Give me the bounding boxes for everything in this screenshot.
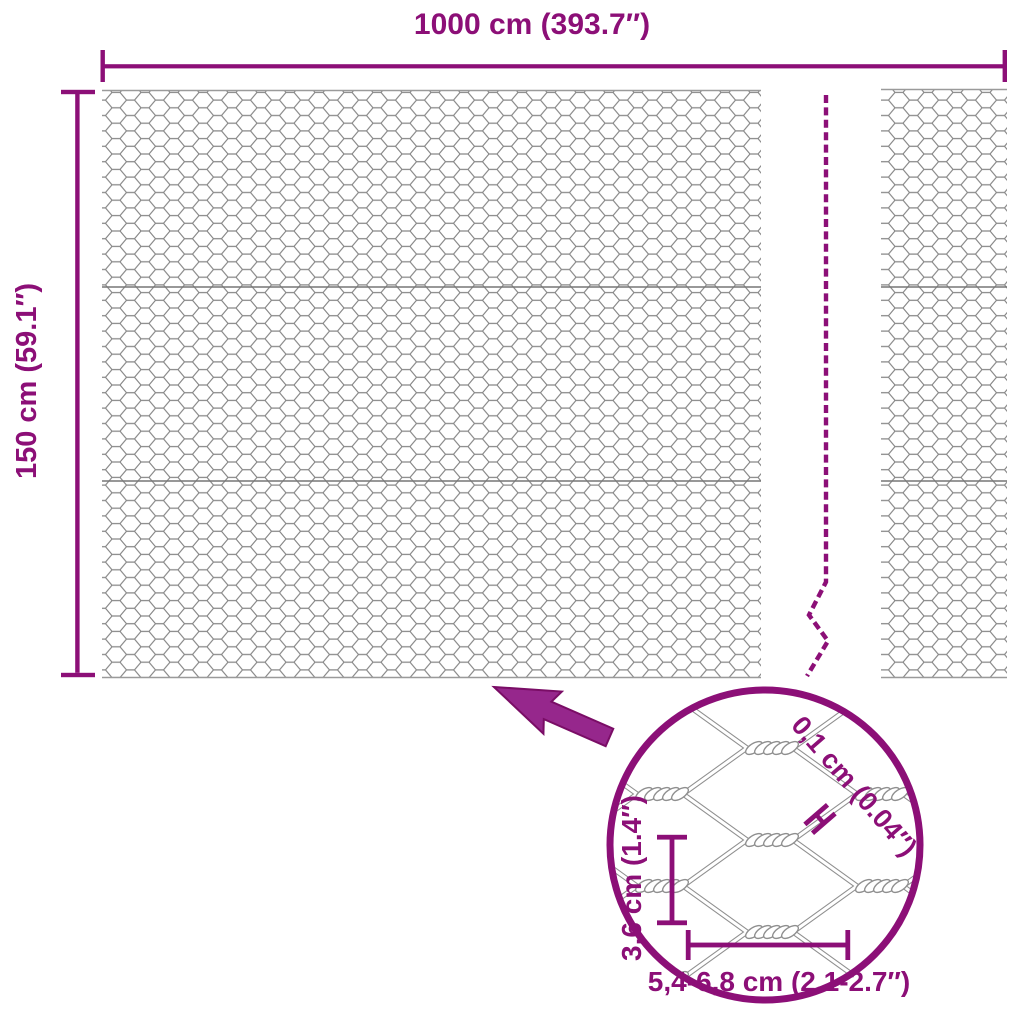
svg-text:150 cm (59.1″): 150 cm (59.1″) — [11, 283, 43, 479]
svg-text:1000 cm (393.7″): 1000 cm (393.7″) — [414, 8, 650, 41]
svg-text:3,6 cm (1.4″): 3,6 cm (1.4″) — [616, 795, 647, 961]
svg-text:5,4-6,8 cm (2.1-2.7″): 5,4-6,8 cm (2.1-2.7″) — [648, 966, 910, 997]
svg-text:0,1 cm (0.04″): 0,1 cm (0.04″) — [785, 710, 922, 862]
